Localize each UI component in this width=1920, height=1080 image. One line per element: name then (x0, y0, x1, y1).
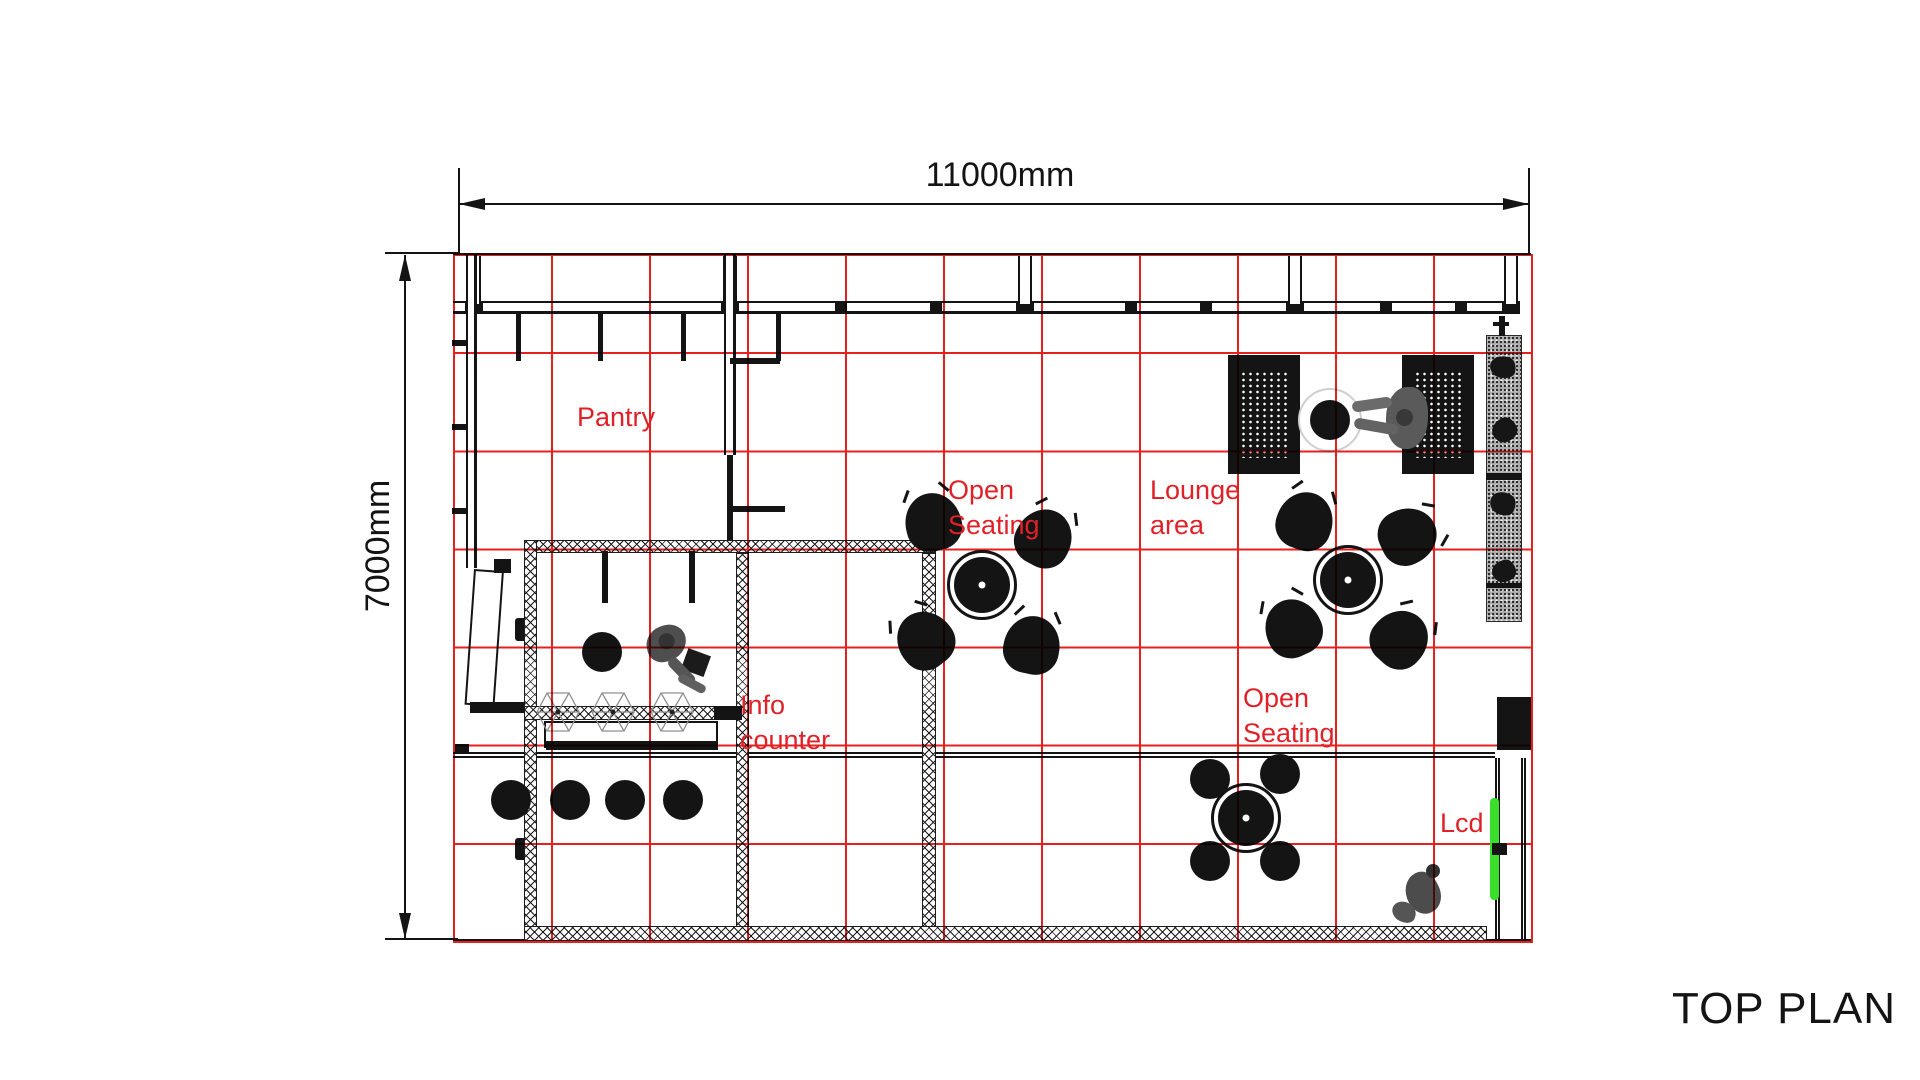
dim-line-vertical (404, 255, 406, 939)
stool (491, 780, 531, 820)
hexagon-stool-icon (536, 690, 580, 734)
pantry-wall-lower (727, 455, 733, 547)
window-joint (1125, 303, 1137, 312)
planter-divider (1486, 583, 1522, 588)
arrowhead-left-icon (459, 198, 485, 210)
wall-stud (776, 314, 781, 361)
hexagon-stool-icon (591, 690, 635, 734)
truss-hanger (689, 551, 695, 603)
window-joint (835, 303, 847, 312)
sheet-title: TOP PLAN (1672, 984, 1896, 1034)
window-mullion (1018, 256, 1032, 304)
sofa (1228, 355, 1300, 474)
round-table (947, 550, 1017, 620)
pantry-top-wall (453, 301, 737, 314)
wall-stub (733, 506, 785, 512)
planter-divider (1486, 473, 1522, 480)
truss-frame (524, 926, 1487, 941)
tub-chair (999, 611, 1066, 679)
window-joint (1380, 303, 1392, 312)
dim-extension-line (1528, 168, 1530, 254)
stool (1190, 841, 1230, 881)
tub-chair (1370, 498, 1446, 573)
label-pantry: Pantry (577, 400, 655, 435)
label-open-seating-2: Open Seating (1243, 681, 1335, 751)
dim-label-width: 11000mm (850, 156, 1150, 195)
arrowhead-down-icon (399, 913, 411, 939)
wall-stub (730, 358, 780, 364)
dim-extension-line (458, 168, 460, 254)
wall-stud (516, 314, 521, 361)
label-lcd: Lcd (1440, 806, 1484, 841)
info-counter-front (546, 741, 718, 750)
left-wall (466, 255, 477, 568)
stool (605, 780, 645, 820)
dim-label-height: 7000mm (359, 466, 395, 626)
wall-tick (452, 508, 466, 514)
stool (663, 780, 703, 820)
label-lounge-area: Lounge area (1150, 473, 1240, 543)
stool (1260, 754, 1300, 794)
label-open-seating-1: Open Seating (948, 473, 1040, 543)
dim-line-horizontal (459, 203, 1529, 205)
wall-tick (452, 424, 466, 430)
plant-sprig (1499, 316, 1505, 336)
tub-chair (1269, 484, 1341, 558)
arrowhead-right-icon (1503, 198, 1529, 210)
truss-end-block (714, 706, 742, 720)
person-figure (1352, 383, 1434, 459)
stool (1260, 841, 1300, 881)
top-wall-line (453, 253, 1531, 255)
person-figure (635, 620, 719, 702)
truss-hanger (602, 551, 608, 603)
corridor-wall (1521, 758, 1526, 941)
tub-chair (885, 600, 965, 680)
window-joint (930, 303, 942, 312)
arrowhead-up-icon (399, 255, 411, 281)
wall-stud (681, 314, 686, 361)
wall-tick (452, 340, 466, 346)
window-joint (1200, 303, 1212, 312)
truss-frame (524, 540, 936, 553)
round-table (1211, 783, 1281, 853)
stool (550, 780, 590, 820)
lcd-mount (1492, 843, 1507, 855)
door-leaf (465, 569, 504, 707)
plant-sprig (1493, 322, 1509, 326)
dim-extension-line (385, 938, 458, 940)
window-mullion (1288, 256, 1302, 304)
door-threshold (470, 702, 527, 713)
round-table (1313, 545, 1383, 615)
long-partition-wall (453, 752, 1495, 758)
cabinet-block (1497, 697, 1531, 750)
stool (582, 632, 622, 672)
window-mullion (1504, 256, 1518, 304)
wall-stud (598, 314, 603, 361)
pantry-wall (724, 255, 736, 455)
person-figure (1390, 862, 1454, 928)
top-plan-drawing: 11000mm 7000mm (0, 0, 1920, 1080)
door-hinge (494, 559, 511, 573)
dim-extension-line (385, 252, 458, 254)
tub-chair (1360, 599, 1440, 680)
window-joint (1455, 303, 1467, 312)
truss-frame (524, 540, 537, 941)
label-info-counter: Info counter (740, 688, 830, 758)
